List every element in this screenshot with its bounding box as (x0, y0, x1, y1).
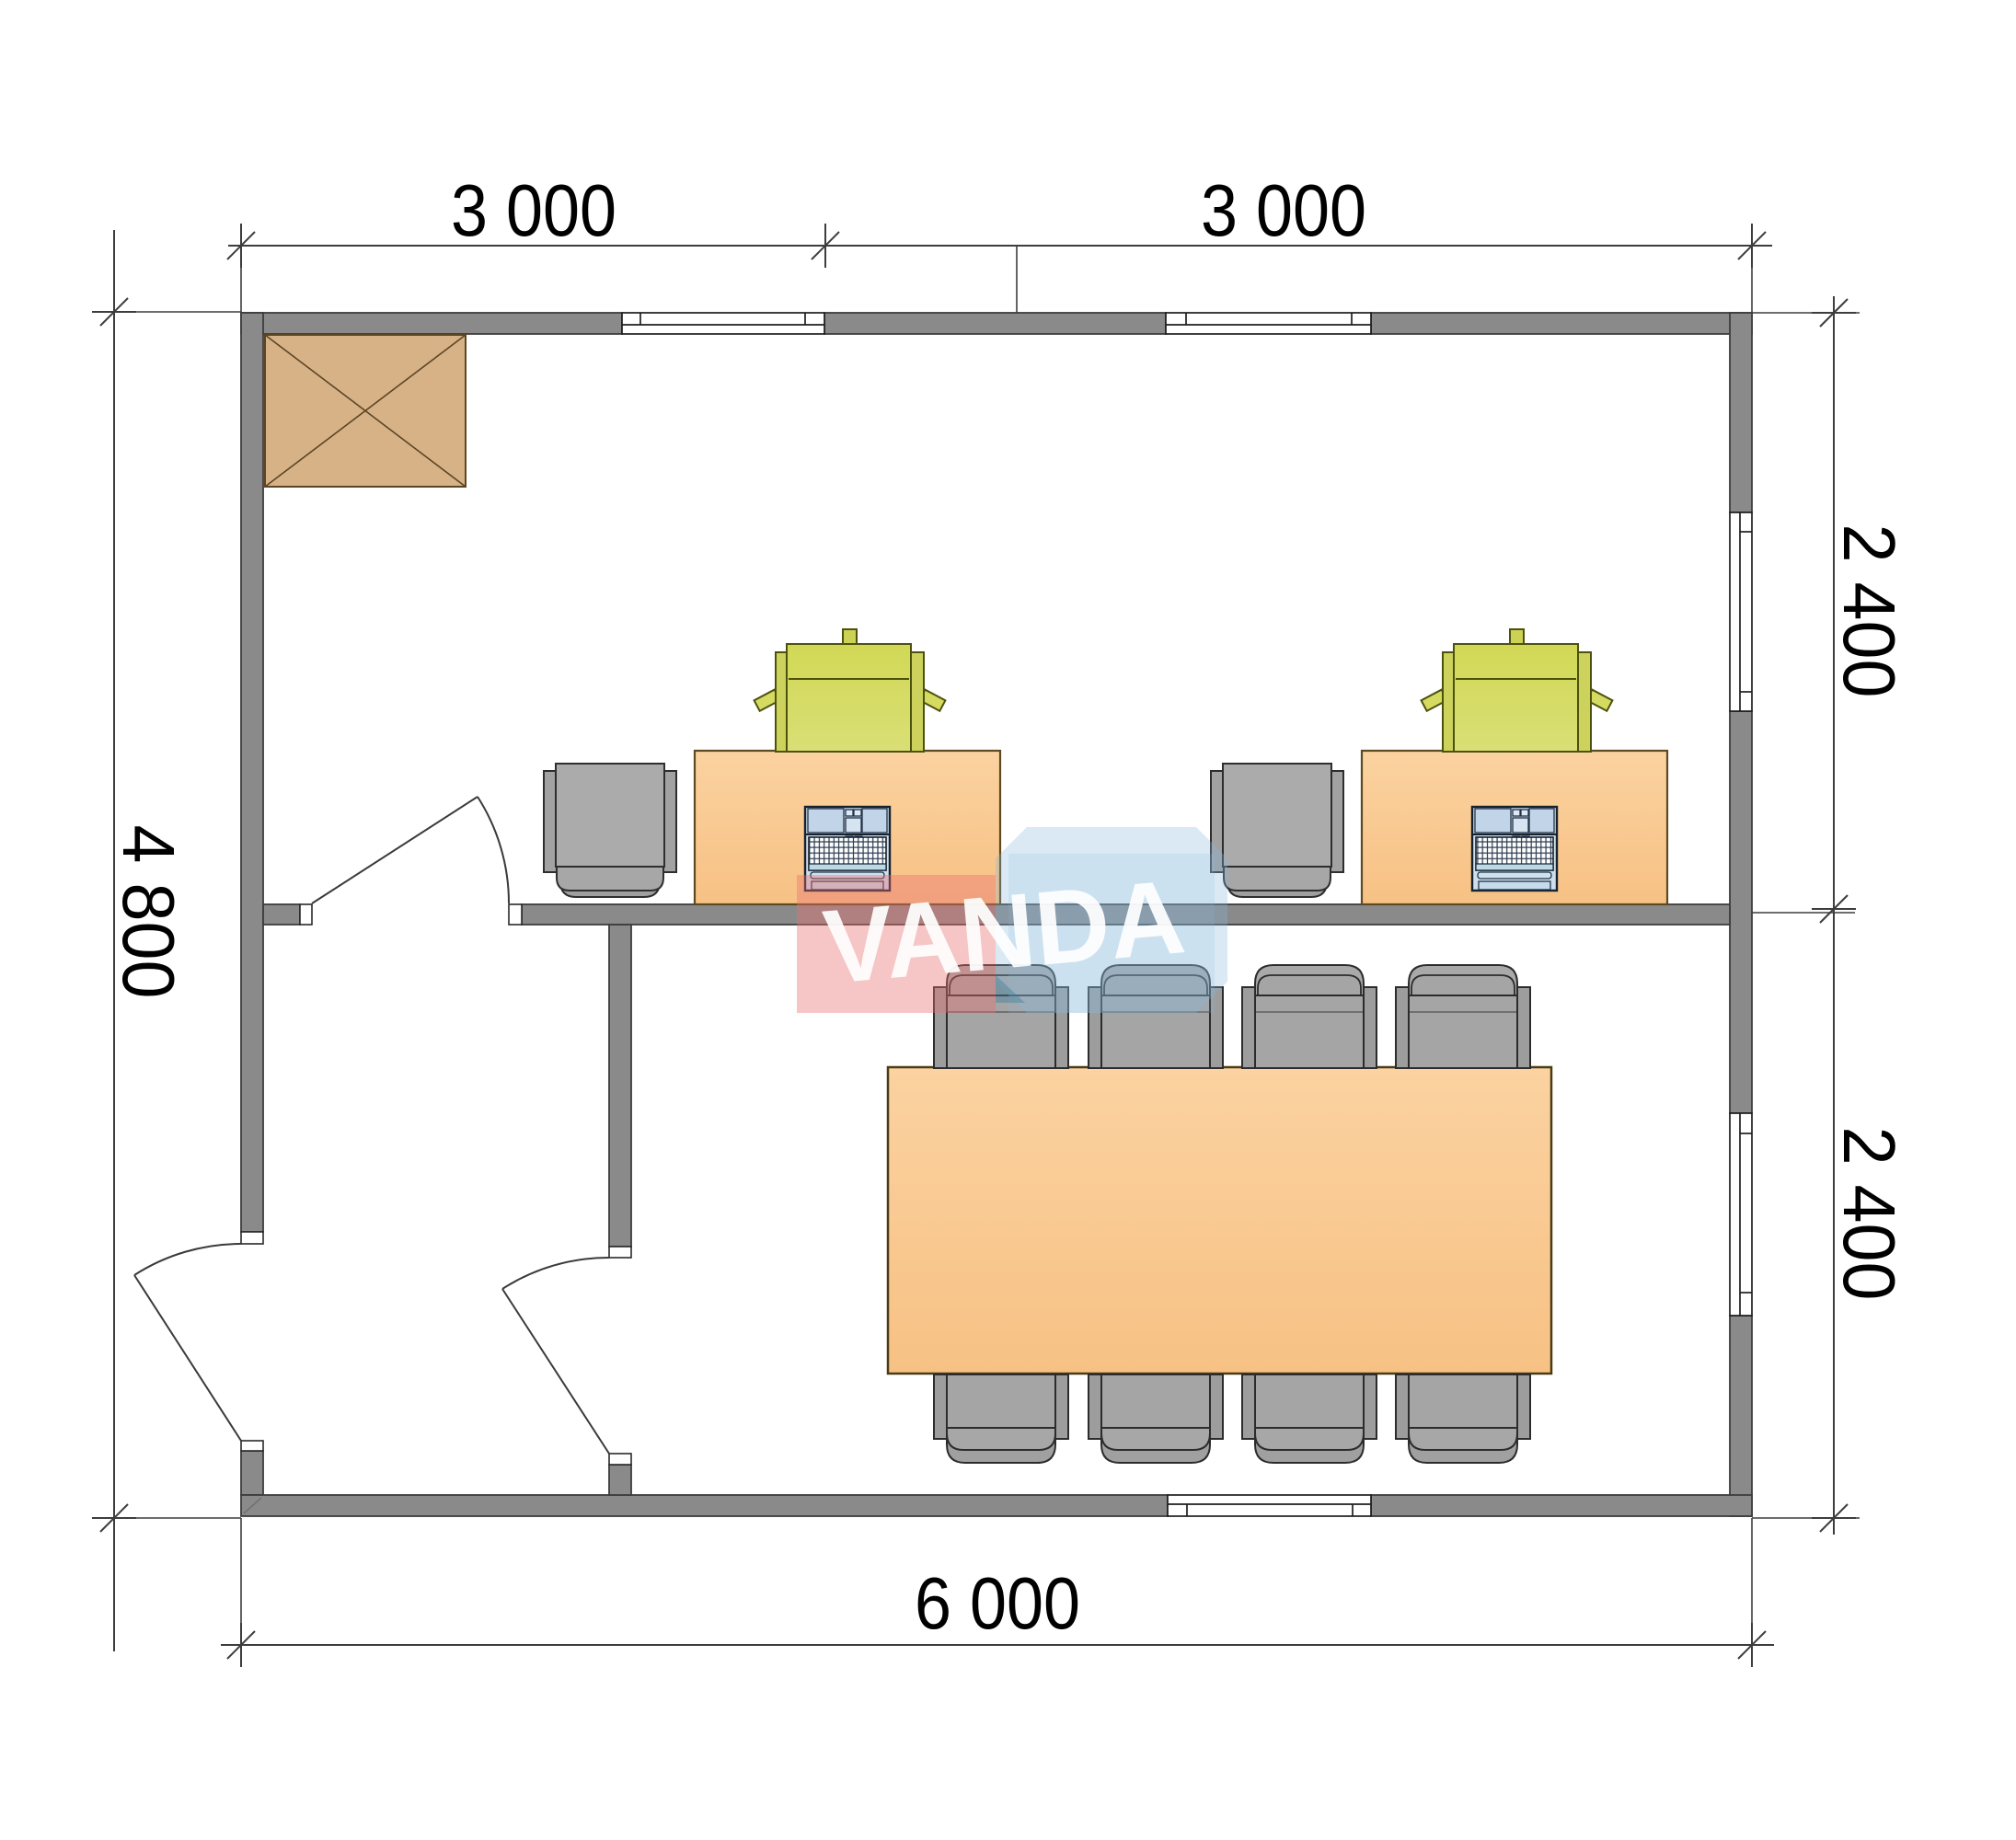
svg-text:6 000: 6 000 (915, 1562, 1080, 1644)
svg-text:3 000: 3 000 (1201, 169, 1366, 251)
svg-text:2 400: 2 400 (1828, 1127, 1910, 1301)
svg-text:4 800: 4 800 (108, 825, 190, 999)
svg-text:2 400: 2 400 (1828, 524, 1910, 698)
svg-text:3 000: 3 000 (451, 169, 616, 251)
